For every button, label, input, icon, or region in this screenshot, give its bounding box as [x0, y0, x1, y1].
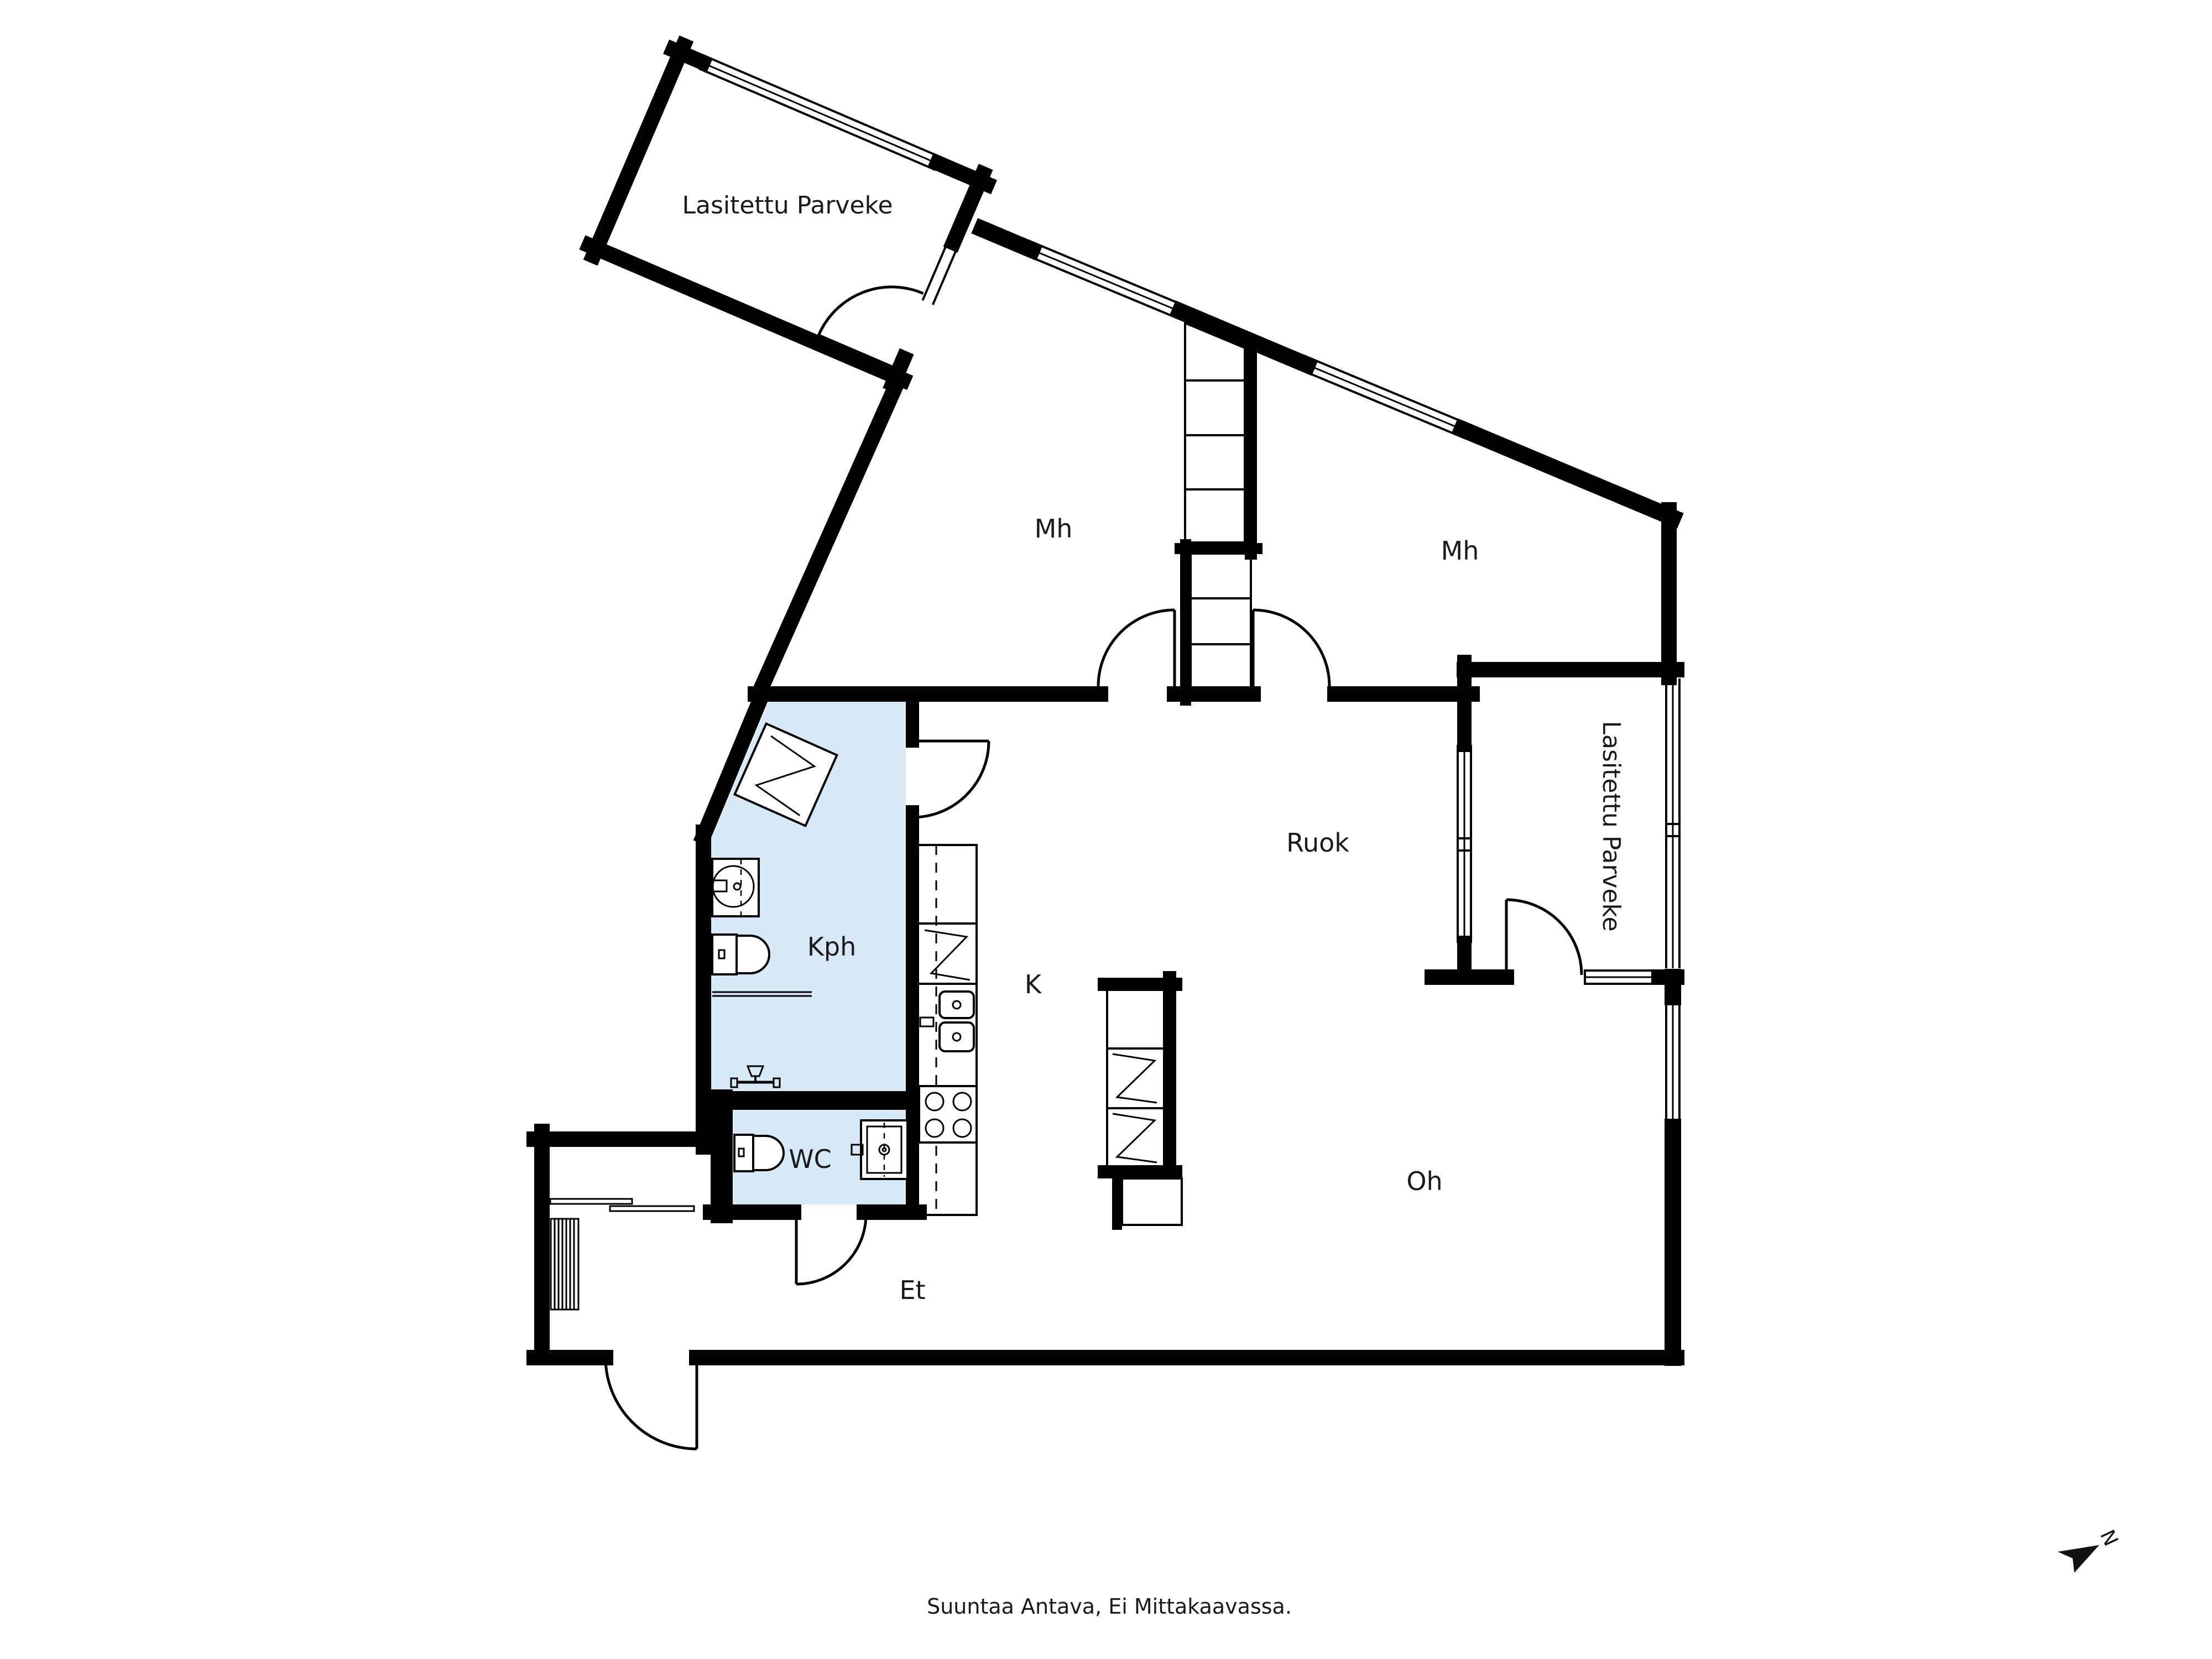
wc-toilet-icon [734, 1135, 784, 1171]
room-label-mh-right: Mh [1441, 536, 1479, 566]
room-label-mh-left: Mh [1035, 514, 1073, 544]
room-label-wc: WC [789, 1144, 832, 1174]
bathroom-sink-icon [712, 859, 759, 916]
room-label-ruok: Ruok [1286, 828, 1349, 858]
kph-toilet-icon [712, 935, 769, 974]
balcony-top-label: Lasitettu Parveke [682, 191, 893, 220]
room-label-oh: Oh [1406, 1166, 1442, 1196]
wc-sink-icon [852, 1120, 907, 1179]
background [0, 0, 2212, 1659]
disclaimer-text: Suuntaa Antava, Ei Mittakaavassa. [927, 1594, 1292, 1619]
balcony-right-label: Lasitettu Parveke [1597, 721, 1625, 931]
stove-icon [919, 1086, 977, 1142]
room-label-et: Et [899, 1275, 925, 1305]
room-label-kph: Kph [807, 932, 857, 962]
floor-plan-svg: Lasitettu Parveke [0, 0, 2212, 1659]
floor-plan-page: Lasitettu Parveke [0, 0, 2212, 1659]
room-label-k: K [1025, 969, 1042, 999]
